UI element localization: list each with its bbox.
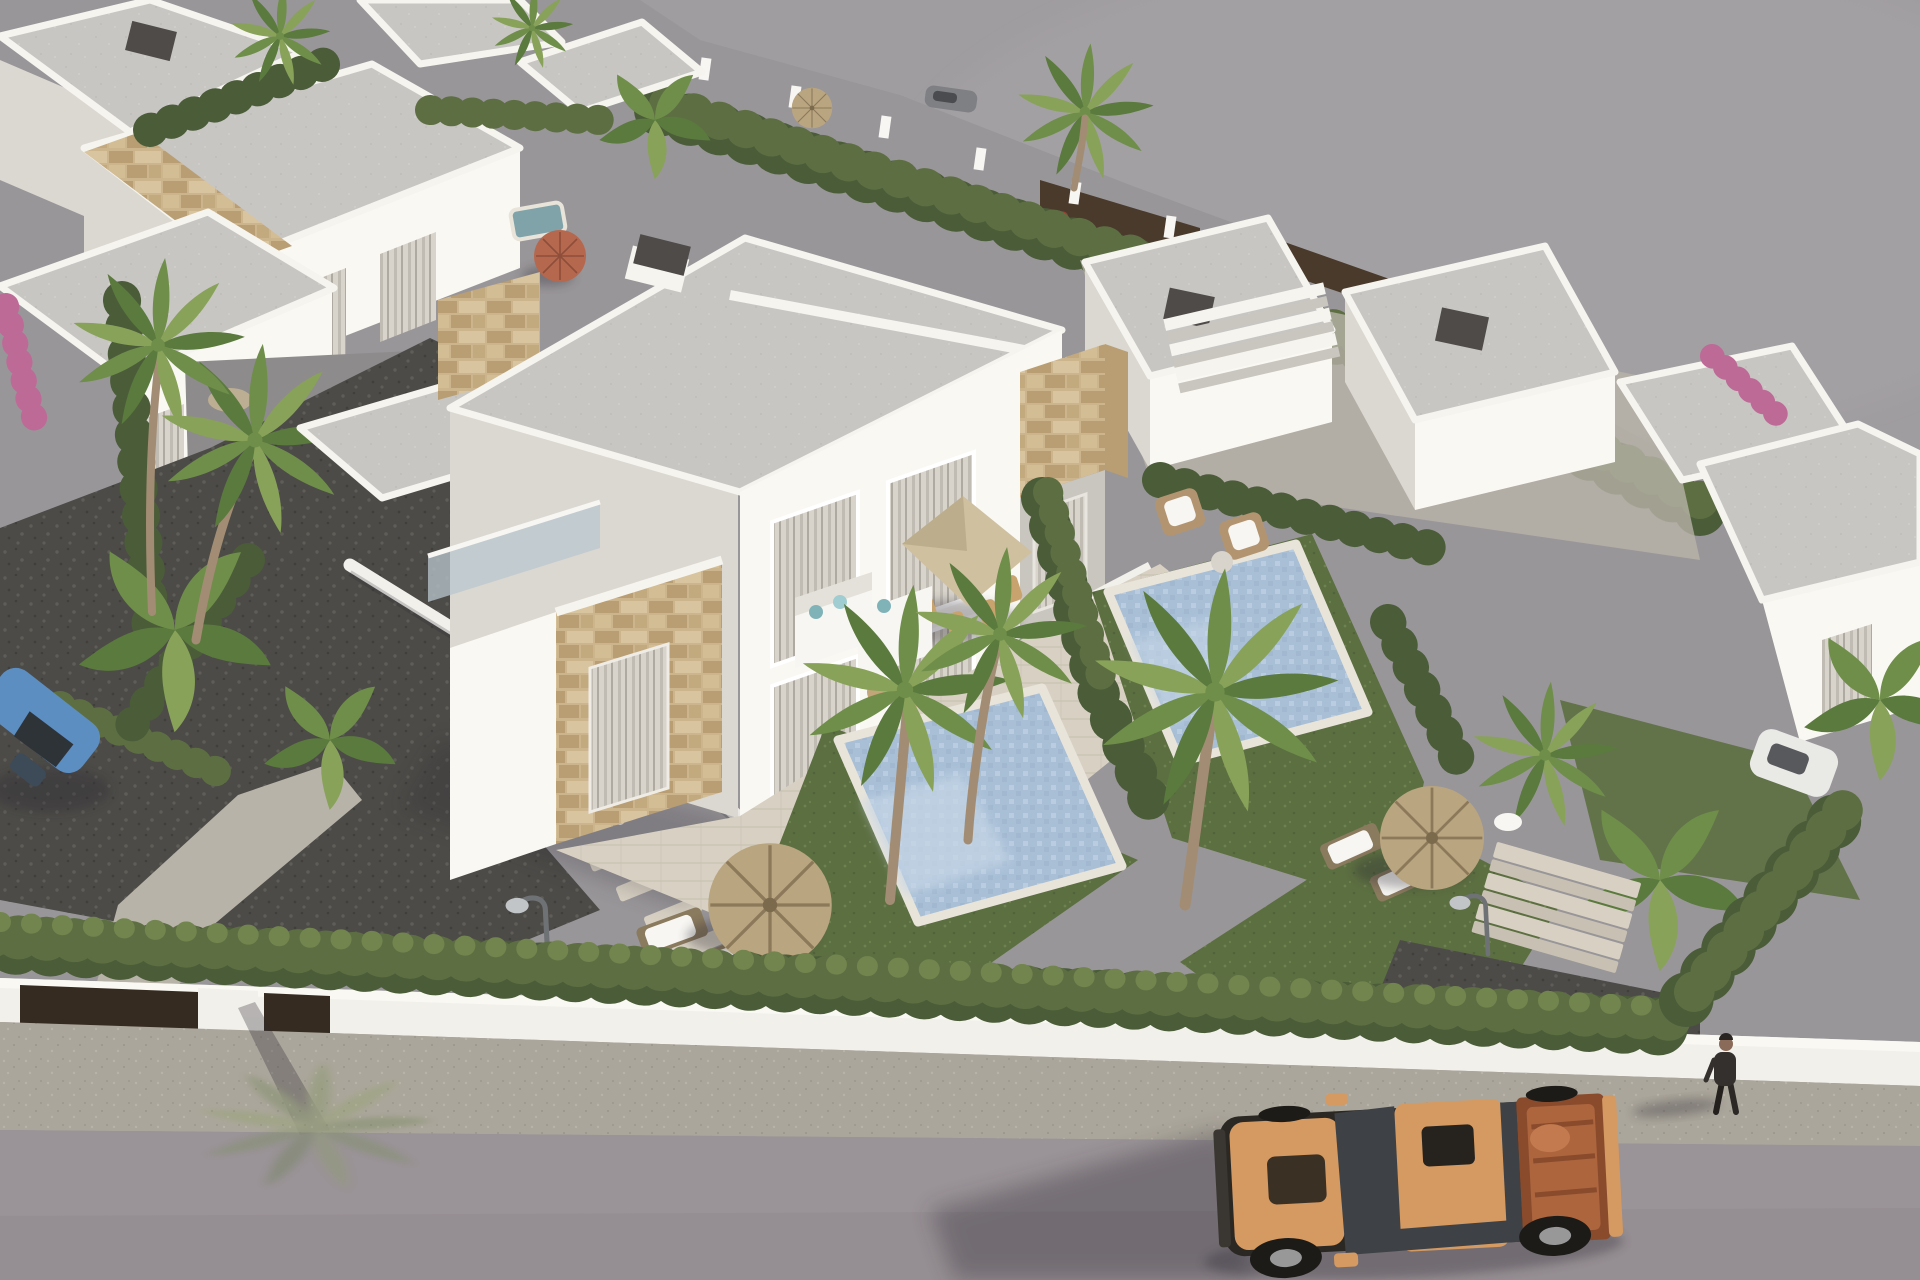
rear-thatch-parasol (792, 88, 833, 129)
render-image: Aerial 3D render of a modern white villa… (0, 0, 1920, 1280)
